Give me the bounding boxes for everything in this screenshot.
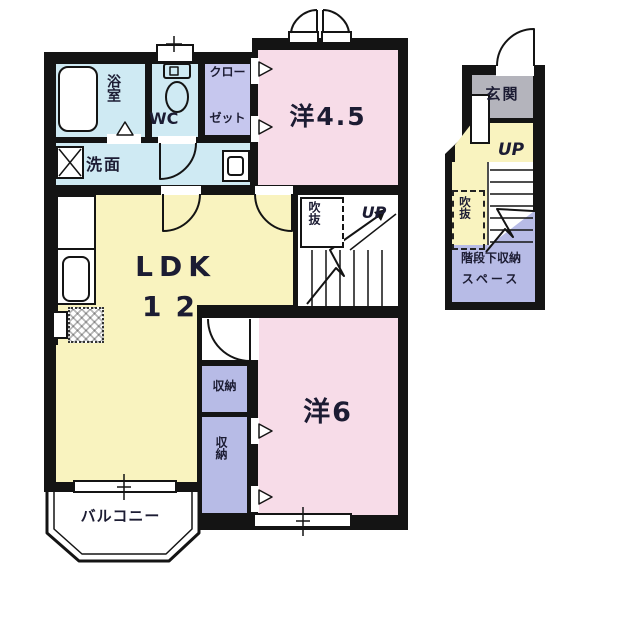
casement-window-icon: [291, 10, 349, 33]
label-up-entry: UP: [489, 140, 533, 160]
ldk-wall-cabinet-icon: [52, 311, 68, 339]
wc-window: [156, 44, 194, 63]
wc-door-opening: [158, 136, 196, 144]
label-up-main: UP: [352, 203, 396, 222]
label-under-stair-storage-line1: 階段下収納: [445, 249, 537, 266]
washing-machine-pan-icon: [56, 146, 84, 179]
label-closet-line2: ゼット: [204, 112, 251, 125]
label-closet-line1: クロー: [204, 66, 251, 79]
washbasin-bowl-icon: [227, 156, 244, 176]
western-4-5-casement-window-left: [288, 31, 319, 44]
western-6-window: [253, 513, 352, 528]
closet-folding-door-opening-1: [251, 58, 259, 84]
entrance-door-arc: [497, 29, 534, 66]
entrance-door-opening: [496, 64, 534, 76]
bath-door-opening: [107, 134, 141, 144]
washroom-door-opening: [161, 186, 201, 195]
balcony-outline: [47, 492, 199, 561]
label-western-4-5: 洋4.5: [258, 97, 398, 133]
label-balcony: バルコニー: [58, 505, 183, 526]
room-6-entry-nook: [202, 318, 250, 360]
refrigerator-space-icon: [68, 307, 104, 343]
label-under-stair-storage-line2: スペース: [445, 270, 537, 287]
label-bathroom: 浴室: [103, 74, 123, 102]
bathtub-icon: [58, 66, 98, 132]
label-ldk-size: 12: [118, 290, 233, 323]
kitchen-counter-divider: [57, 248, 95, 250]
label-entrance: 玄関: [472, 83, 533, 104]
room-storage-lower: [202, 417, 247, 513]
floor-plan-canvas: 浴室 WC クロー ゼット 洋4.5 洗面 LDK 12 吹抜 UP 収納 収納…: [0, 0, 640, 619]
label-ldk: LDK: [118, 250, 233, 283]
label-washroom: 洗面: [86, 151, 122, 175]
label-toilet: WC: [149, 109, 178, 128]
label-storage-upper: 収納: [202, 377, 247, 394]
label-western-6: 洋6: [258, 390, 398, 429]
label-void-main: 吹抜: [306, 201, 323, 225]
western-4-5-casement-window-right: [321, 31, 352, 44]
storage-folding-door-opening-2: [251, 486, 259, 512]
western-6-door-opening: [250, 318, 259, 360]
label-void-entry: 吹抜: [457, 196, 473, 219]
ldk-balcony-window: [73, 480, 177, 493]
western-4-5-door-opening: [255, 186, 293, 195]
label-storage-lower: 収納: [213, 436, 230, 460]
kitchen-sink-icon: [62, 256, 90, 302]
